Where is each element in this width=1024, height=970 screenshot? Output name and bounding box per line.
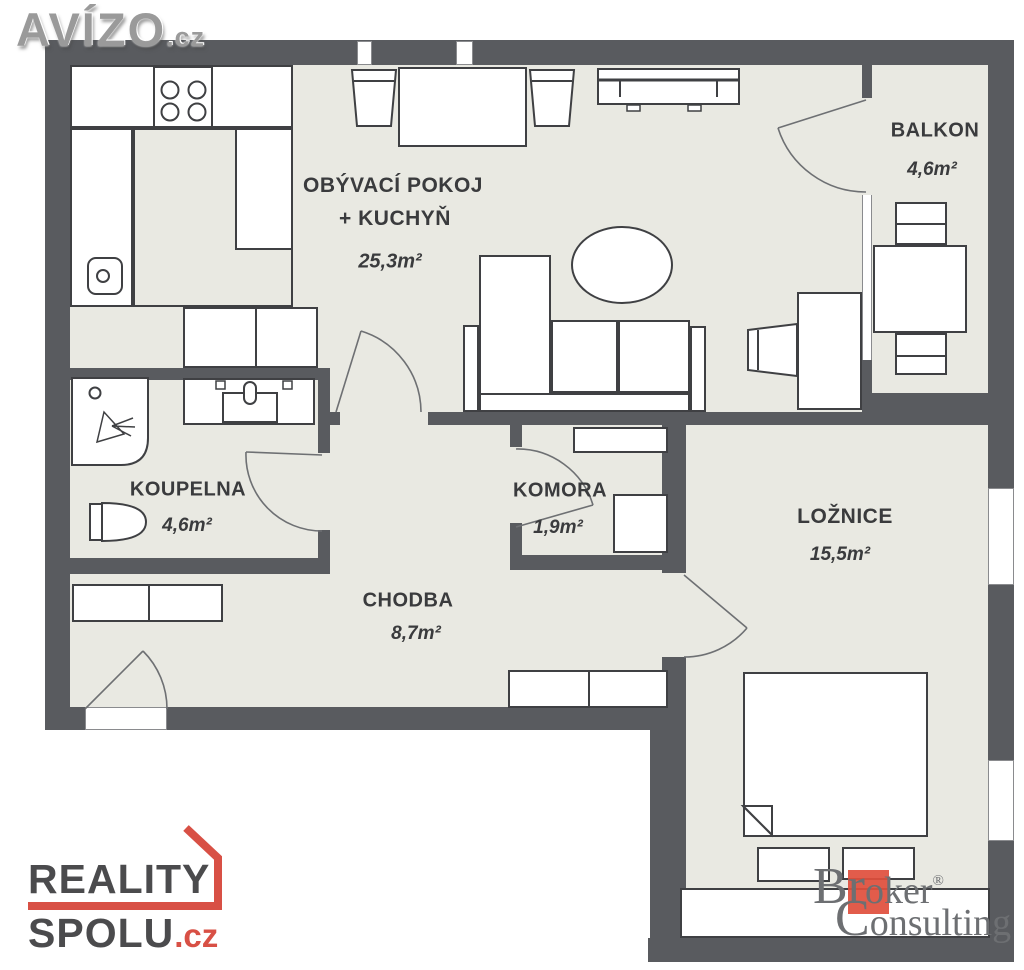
- wall-bath-bottom: [45, 558, 330, 574]
- kitchen-counter-left: [70, 128, 133, 307]
- label-balcony: BALKON: [891, 120, 980, 143]
- door-gap-bedroom: [662, 573, 686, 657]
- label-living-room: OBÝVACÍ POKOJ: [303, 174, 483, 198]
- reality-spolu-line2: SPOLU.cz: [28, 910, 218, 957]
- reality-spolu-logo: REALITY SPOLU.cz: [0, 818, 260, 968]
- broker-reg-mark: ®: [933, 873, 944, 889]
- wall-storage-bottom: [510, 555, 686, 570]
- washbasin: [222, 392, 278, 423]
- label-bathroom: KOUPELNA: [130, 479, 246, 502]
- storage-box: [613, 494, 668, 553]
- dining-table: [398, 67, 527, 147]
- wall-bedroom-left: [662, 412, 686, 707]
- area-hallway: 8,7m²: [391, 623, 441, 645]
- reality-spolu-line2-text: SPOLU: [28, 910, 174, 956]
- wall-balcony-partition-top: [862, 65, 872, 98]
- avizo-logo: AVÍZO.cz: [16, 2, 205, 57]
- balcony-glass-wall: [862, 195, 872, 360]
- area-bathroom: 4,6m²: [162, 515, 212, 537]
- broker-line2: Consulting: [835, 900, 1011, 945]
- entrance-door-gap: [85, 707, 167, 730]
- area-storage: 1,9m²: [533, 517, 583, 539]
- wall-balcony-partition-bottom: [862, 360, 872, 393]
- chair-back-line: [897, 223, 945, 225]
- label-storage: KOMORA: [513, 480, 607, 503]
- storage-shelf: [573, 427, 668, 453]
- door-gap-bathroom: [318, 453, 330, 530]
- broker-consulting-logo: Broker® Consulting: [805, 860, 1020, 965]
- tv-sideboard: [597, 68, 740, 105]
- avizo-text: AVÍZO: [16, 3, 166, 56]
- fridge-cabinet: [235, 128, 293, 250]
- reality-spolu-line1: REALITY: [28, 856, 210, 903]
- balcony-table: [873, 245, 967, 333]
- sofa-armrest-left: [463, 325, 479, 412]
- wall-left: [45, 40, 70, 730]
- broker-c: C: [835, 890, 870, 947]
- balcony-chair-bottom: [895, 333, 947, 375]
- sofa-seat-middle: [551, 320, 618, 393]
- cabinet-divider: [255, 309, 257, 366]
- label-bedroom: LOŽNICE: [797, 505, 893, 529]
- hall-wardrobe: [72, 584, 223, 622]
- stove: [153, 66, 213, 128]
- reality-spolu-suffix: .cz: [174, 917, 218, 954]
- shoe-cabinet-divider: [588, 672, 590, 706]
- label-hallway: CHODBA: [363, 590, 454, 613]
- window-top-1: [357, 41, 372, 65]
- chair-back-line: [897, 355, 945, 357]
- area-living-room: 25,3m²: [358, 251, 421, 274]
- kitchen-lower-cabinets: [183, 307, 318, 368]
- area-bedroom: 15,5m²: [810, 544, 870, 566]
- bed: [743, 672, 928, 837]
- sofa-base: [479, 393, 690, 412]
- broker-onsulting: onsulting: [870, 902, 1011, 944]
- avizo-suffix: .cz: [166, 22, 205, 52]
- wall-balcony-bottom: [862, 393, 1014, 425]
- wall-living-hall-stub: [330, 412, 340, 425]
- shoe-cabinet: [508, 670, 668, 708]
- area-balcony: 4,6m²: [907, 159, 957, 181]
- window-bedroom-1: [988, 488, 1014, 585]
- wardrobe-divider: [148, 586, 150, 620]
- floorplan-canvas: OBÝVACÍ POKOJ + KUCHYŇ 25,3m² BALKON 4,6…: [0, 0, 1024, 970]
- window-bedroom-2: [988, 760, 1014, 841]
- sofa-armrest-right: [690, 326, 706, 412]
- sofa-seat-right: [618, 320, 690, 393]
- balcony-chair-top: [895, 202, 947, 245]
- window-top-2: [456, 41, 473, 65]
- label-living-room-line2: + KUCHYŇ: [339, 207, 451, 231]
- desk: [797, 292, 862, 410]
- sofa-chaise: [479, 255, 551, 412]
